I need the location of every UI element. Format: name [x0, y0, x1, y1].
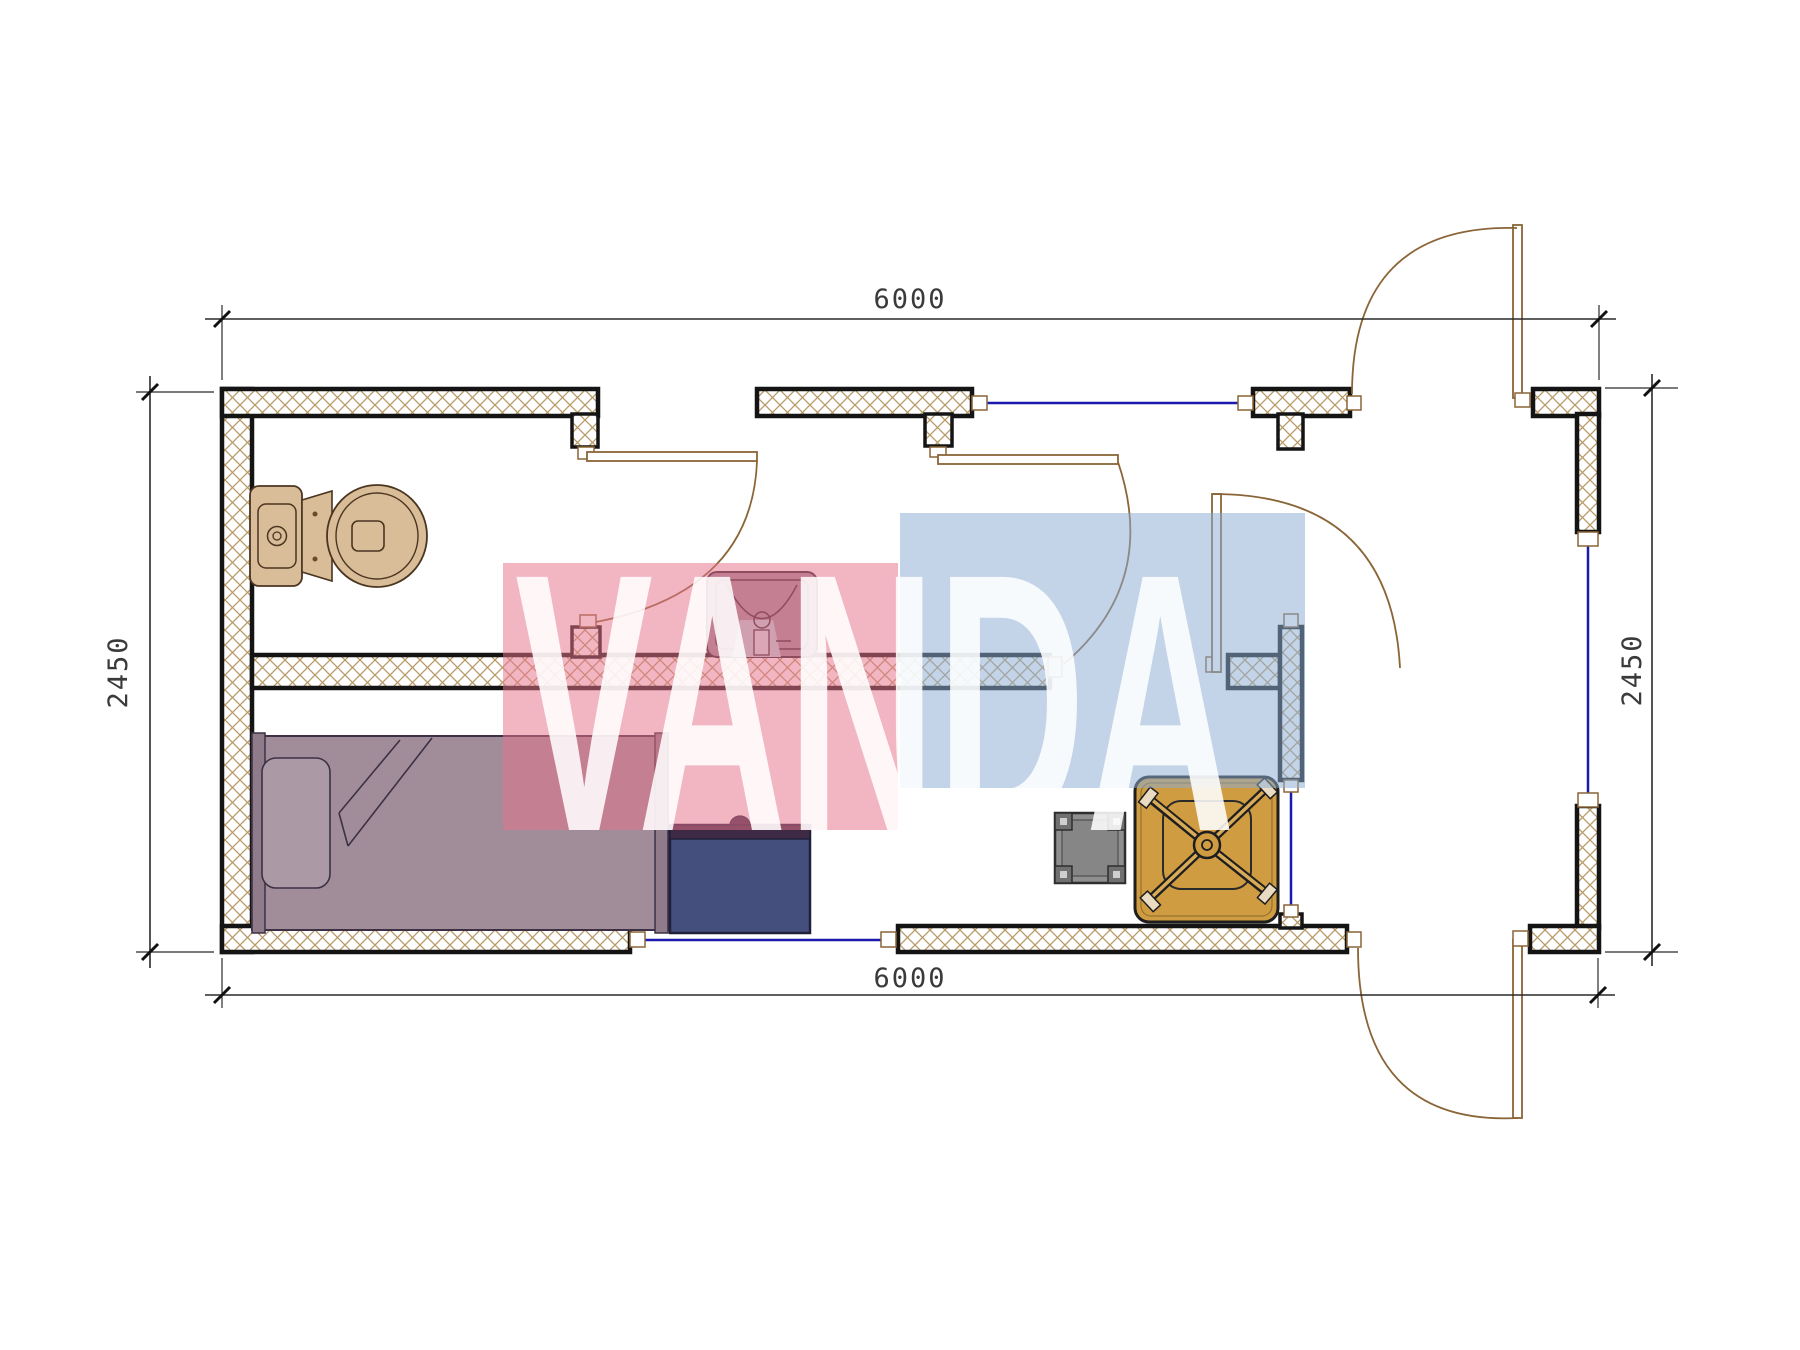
- dim-label-top: 6000: [873, 284, 946, 315]
- ne-corner-wall-leg: [1577, 414, 1599, 532]
- bottom-wall-right: [898, 926, 1347, 952]
- se-corner-wall-leg: [1577, 806, 1599, 928]
- wall-stub-wc-door: [572, 414, 598, 447]
- dim-label-left: 2450: [103, 635, 134, 708]
- floor-plan-page: 6000 6000 2450 2450 VANDA: [0, 0, 1800, 1350]
- watermark: VANDA: [503, 497, 1305, 908]
- wall-stub-hall-door: [925, 414, 952, 446]
- left-wall: [222, 389, 252, 952]
- dim-label-bottom: 6000: [873, 963, 946, 994]
- top-wall-segment-c: [1253, 389, 1350, 416]
- watermark-text: VANDA: [515, 497, 1235, 908]
- se-corner-wall-bar: [1530, 926, 1599, 952]
- top-wall-segment-a: [222, 389, 598, 416]
- floor-plan-drawing: 6000 6000 2450 2450 VANDA: [0, 0, 1800, 1350]
- wall-stub-vestibule: [1278, 414, 1303, 449]
- top-wall-segment-b: [757, 389, 972, 416]
- dim-label-right: 2450: [1617, 633, 1648, 706]
